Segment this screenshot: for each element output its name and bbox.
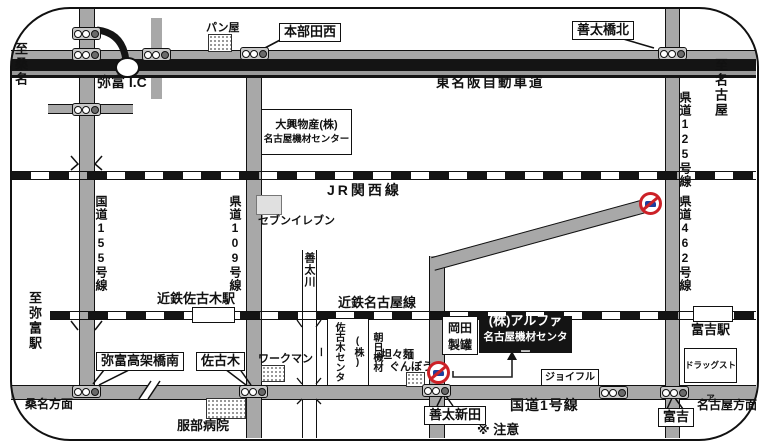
kuwana-direction-label: 桑名方面 <box>25 398 73 411</box>
alpha-dept: 名古屋機材センター <box>479 329 572 359</box>
signal-r155-short-road <box>72 103 101 116</box>
bridge-ticks-kintetsu <box>71 321 102 330</box>
access-map: 弥富 I.C 近鉄佐古木駅 富吉駅 東名阪自動車道 JR関西線 近鉄名古屋線 国… <box>0 0 768 447</box>
alpha-destination-box: (株)アルファ 名古屋機材センター <box>479 316 572 353</box>
drugstore-box: ドラッグストア <box>684 348 737 383</box>
seven-eleven-label: セブンイレブン <box>258 215 335 227</box>
asahi-kizai-box: 朝日機材(株) 佐古木センター <box>327 318 369 386</box>
route1-label: 国道1号線 <box>510 398 579 413</box>
sakogi-station-box <box>192 307 235 323</box>
signal-r155-frontage <box>72 48 101 61</box>
pref462-label: 県道462号線 <box>679 195 691 292</box>
no-entry-sign-route1 <box>427 361 450 384</box>
signal-yatomi-kokakyo-minami <box>72 385 101 398</box>
caution-note: ※ 注意 <box>477 423 519 437</box>
bakery-building <box>208 34 232 52</box>
alpha-name: (株)アルファ <box>479 310 572 329</box>
tomiyoshi-station-box <box>693 306 733 322</box>
hattori-hospital-label: 服部病院 <box>177 419 229 433</box>
okada-seikan-box: 岡田 製罐 <box>442 316 478 355</box>
callout-yatomi-kokakyo-minami: 弥富高架橋南 <box>96 352 184 371</box>
bridge-ticks-jr <box>71 156 102 170</box>
pref109-label: 県道109号線 <box>229 195 241 292</box>
signal-zentabashi-kita <box>658 47 687 60</box>
tomiyoshi-station-label: 富吉駅 <box>691 323 730 337</box>
yatomi-kokakyo-minami-pointer <box>93 370 129 385</box>
signal-ic-stub <box>142 48 171 61</box>
to-yatomi-station-label: 至弥富駅 <box>28 291 41 351</box>
hattori-hospital-building <box>206 398 246 419</box>
signal-honbuda-nishi <box>240 47 269 60</box>
callout-tomiyoshi: 富吉 <box>658 408 694 427</box>
bakery-label: パン屋 <box>206 22 240 34</box>
callout-zentabashi-kita: 善太橋北 <box>572 21 634 40</box>
callout-sakogi: 佐古木 <box>196 352 245 371</box>
yatomi-ic-label: 弥富 I.C <box>97 75 147 90</box>
okada-line2: 製罐 <box>443 336 477 353</box>
seven-eleven-building <box>256 195 282 215</box>
daiko-bussan-box: 大興物産(株) 名古屋機材センター <box>261 109 352 155</box>
kintetsu-line-label: 近鉄名古屋線 <box>338 296 416 310</box>
ic-ramp-curve <box>97 30 126 61</box>
signal-sakogi <box>239 385 268 398</box>
callout-zenta-shinden: 善太新田 <box>424 406 486 425</box>
route155-label: 国道155号線 <box>95 195 107 292</box>
joyful-box: ジョイフル <box>541 369 599 386</box>
yatomi-ic-oval <box>115 57 140 78</box>
pref125-label: 県道125号線 <box>679 91 691 188</box>
daiko-bussan-name: 大興物産(株) <box>262 119 351 131</box>
okada-line1: 岡田 <box>443 319 477 336</box>
callout-honbuda-nishi: 本部田西 <box>279 23 341 42</box>
to-kuwana-label: 至桑名 <box>14 42 27 87</box>
jr-line-label: JR関西線 <box>327 183 402 198</box>
zenta-shinden-pointer <box>437 396 453 406</box>
signal-r155-top <box>72 27 101 40</box>
no-entry-sign-northeast <box>639 192 662 215</box>
signal-zenta-shinden <box>422 384 451 397</box>
signal-joyful <box>599 386 628 399</box>
sakogi-station-label: 近鉄佐古木駅 <box>157 292 235 306</box>
tantanmen-label-line1: 坦々麺 <box>381 349 414 361</box>
workman-building <box>261 365 285 382</box>
expressway-label: 東名阪自動車道 <box>436 76 545 91</box>
to-nagoya-label: 至名古屋 <box>714 58 727 118</box>
workman-label: ワークマン <box>258 353 313 365</box>
daiko-bussan-dept: 名古屋機材センター <box>262 131 351 145</box>
guidance-arrow-line <box>453 359 512 377</box>
signal-tomiyoshi <box>660 386 689 399</box>
zenta-river-label: 善太川 <box>303 252 314 288</box>
